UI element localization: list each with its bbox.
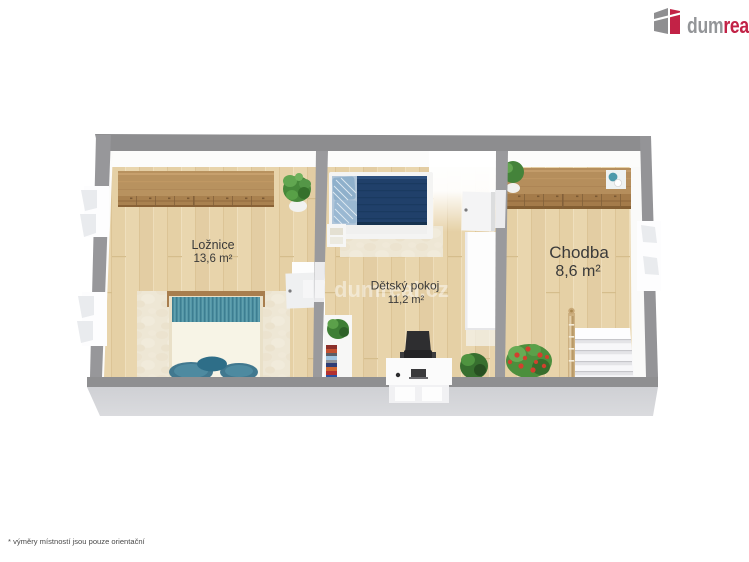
svg-text:13,6 m²: 13,6 m²	[194, 253, 233, 265]
svg-text:dumreal: dumreal	[687, 14, 749, 39]
svg-text:* výměry místností jsou pouze: * výměry místností jsou pouze orientační	[8, 537, 146, 546]
svg-text:Ložnice: Ložnice	[191, 238, 234, 252]
svg-text:11,2 m²: 11,2 m²	[388, 294, 425, 306]
svg-text:Dětský pokoj: Dětský pokoj	[371, 279, 440, 293]
svg-text:Chodba: Chodba	[549, 243, 609, 262]
svg-text:8,6 m²: 8,6 m²	[555, 263, 601, 280]
